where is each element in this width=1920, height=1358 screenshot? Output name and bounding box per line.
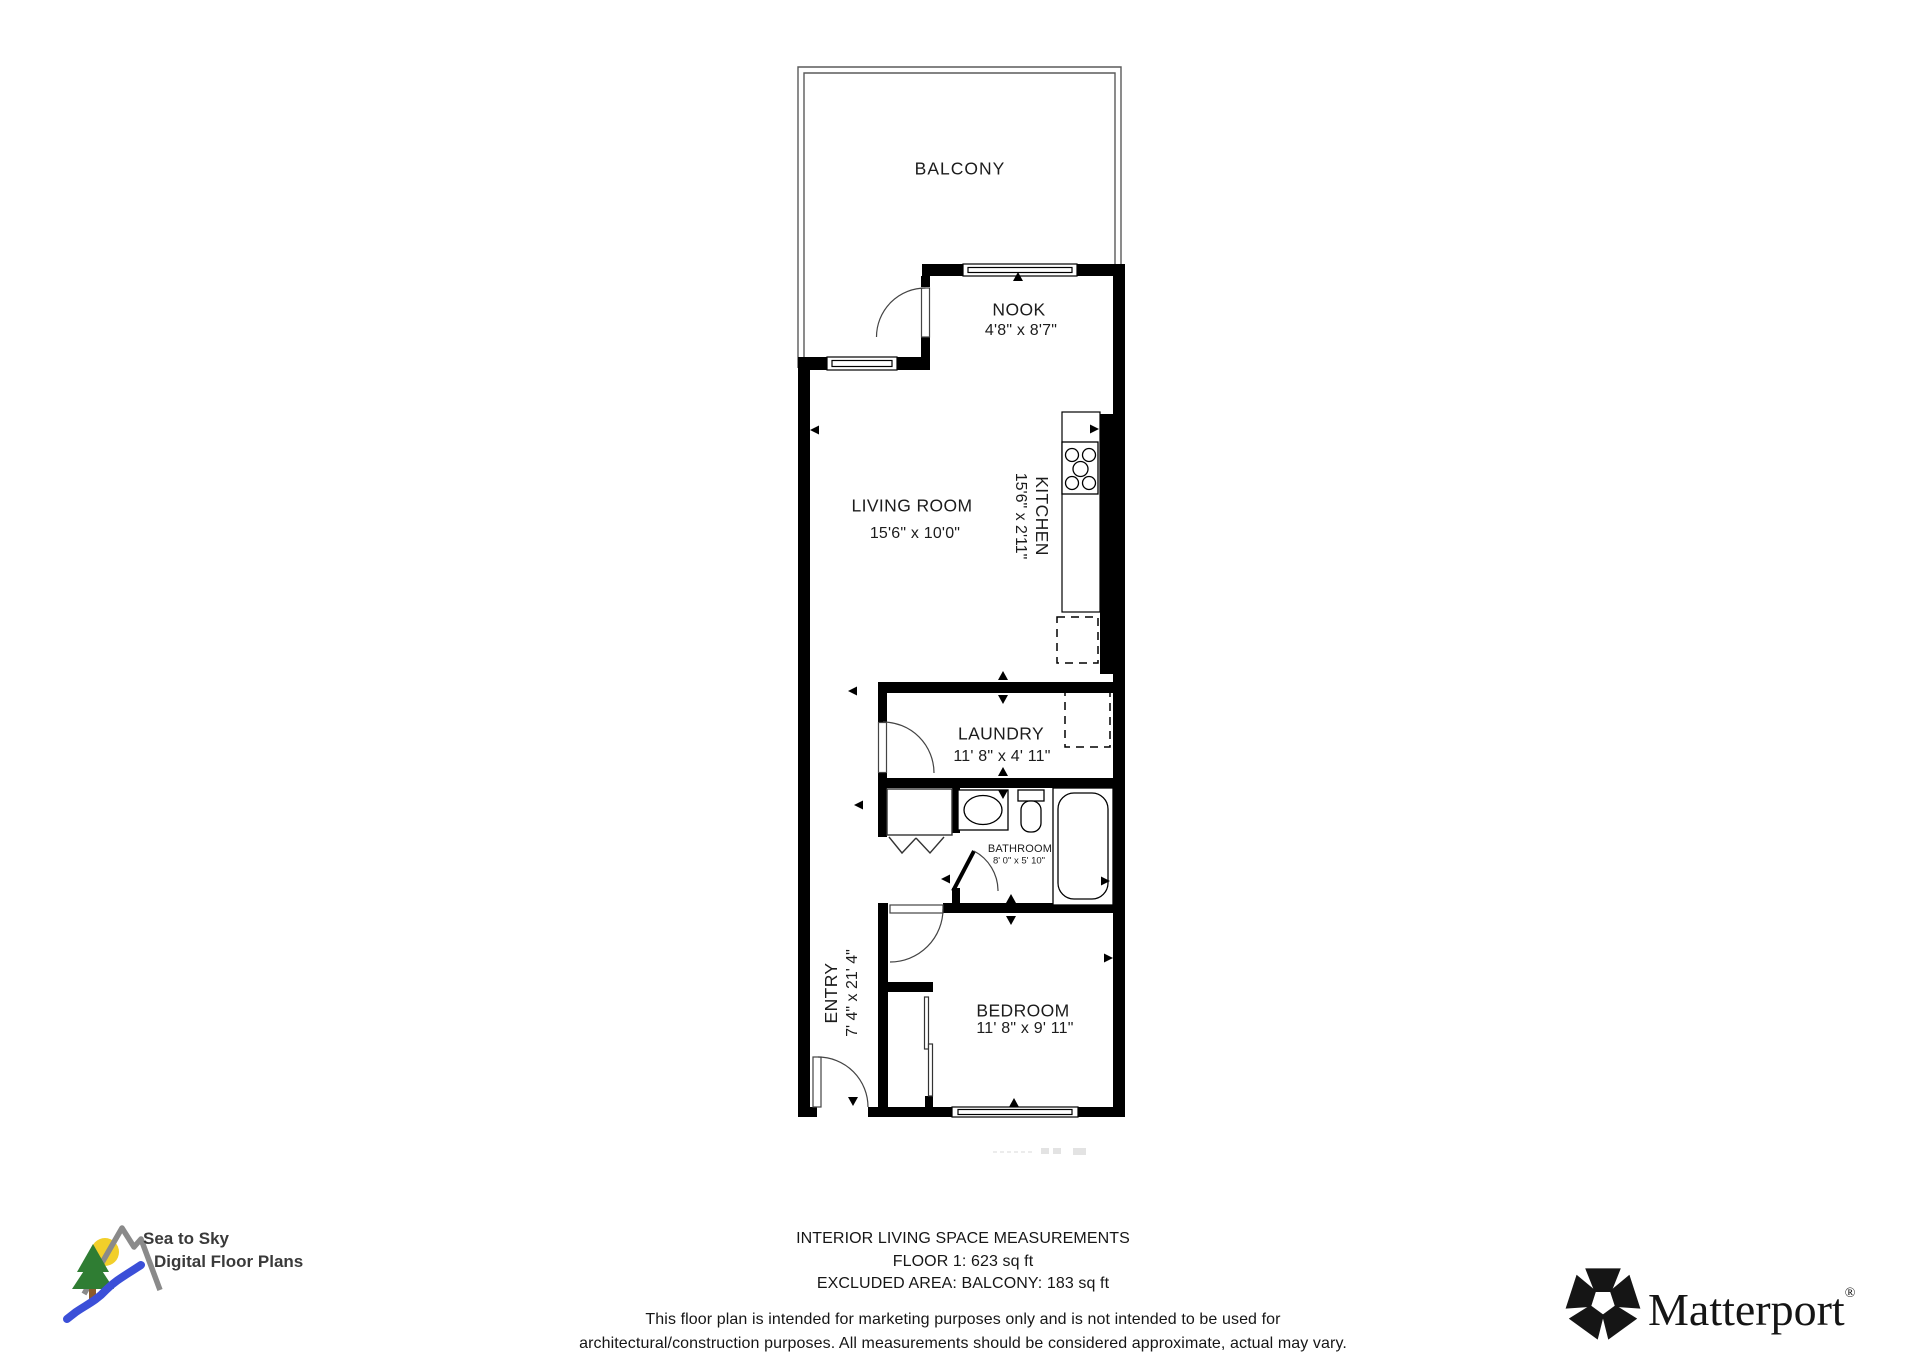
room-label-kitchen-group: KITCHEN 15'6" x 2'11" <box>1009 473 1053 560</box>
kitchen-appliance-dashed <box>1057 617 1098 663</box>
sea-to-sky-name: Sea to Sky <box>143 1229 229 1249</box>
room-label-balcony: BALCONY <box>915 159 1006 180</box>
floor-plan-page: BALCONY NOOK 4'8" x 8'7" LIVING ROOM 15'… <box>0 0 1920 1358</box>
bedroom-door <box>890 905 943 962</box>
room-label-bathroom: BATHROOM <box>988 843 1052 855</box>
room-dims-living-room: 15'6" x 10'0" <box>870 525 960 543</box>
bathtub-icon <box>1053 788 1113 905</box>
laundry-door <box>879 722 935 773</box>
matterport-name: Matterport <box>1648 1284 1845 1335</box>
matterport-icon <box>1566 1268 1641 1339</box>
room-label-bedroom: BEDROOM <box>976 1001 1069 1022</box>
laundry-appliance-dashed <box>1065 692 1110 747</box>
room-dims-nook: 4'8" x 8'7" <box>985 322 1057 340</box>
bathroom-sink-icon <box>958 790 1008 830</box>
balcony-door <box>877 288 930 337</box>
bedroom-closet-sliding-doors <box>925 997 933 1096</box>
room-label-kitchen: KITCHEN <box>1031 473 1053 560</box>
matterport-wordmark: Matterport® <box>1648 1283 1855 1336</box>
sea-to-sky-tagline: Digital Floor Plans <box>154 1252 303 1272</box>
room-dims-bathroom: 8' 0" x 5' 10" <box>993 856 1045 867</box>
living-room-window <box>827 357 897 370</box>
room-label-entry: ENTRY <box>820 949 842 1037</box>
hall-closet-doors <box>887 789 952 853</box>
bedroom-window <box>952 1107 1078 1117</box>
room-label-entry-group: ENTRY 7' 4" x 21' 4" <box>820 949 864 1037</box>
bathroom-door <box>953 851 998 891</box>
room-dims-kitchen: 15'6" x 2'11" <box>1009 473 1031 560</box>
room-dims-laundry: 11' 8" x 4' 11" <box>953 748 1050 766</box>
nook-window <box>963 264 1077 276</box>
excluded-area-text: EXCLUDED AREA: BALCONY: 183 sq ft <box>817 1275 1109 1293</box>
disclaimer-line-2: architectural/construction purposes. All… <box>579 1335 1347 1353</box>
room-dims-entry: 7' 4" x 21' 4" <box>842 949 864 1037</box>
room-dims-bedroom: 11' 8" x 9' 11" <box>976 1020 1073 1038</box>
measurements-title: INTERIOR LIVING SPACE MEASUREMENTS <box>796 1230 1130 1248</box>
balcony-railing <box>798 67 1121 368</box>
room-label-laundry: LAUNDRY <box>958 724 1044 745</box>
floor-plan-drawing <box>0 0 1920 1358</box>
room-label-living-room: LIVING ROOM <box>851 496 972 517</box>
faint-artifact <box>993 1148 1086 1155</box>
disclaimer-line-1: This floor plan is intended for marketin… <box>645 1311 1280 1329</box>
floor-area-text: FLOOR 1: 623 sq ft <box>893 1253 1034 1271</box>
room-label-nook: NOOK <box>992 300 1045 321</box>
toilet-icon <box>1018 790 1044 832</box>
river-icon <box>67 1265 141 1319</box>
stove-icon <box>1062 442 1098 494</box>
registered-mark: ® <box>1845 1286 1856 1301</box>
entry-front-door <box>813 1057 868 1107</box>
